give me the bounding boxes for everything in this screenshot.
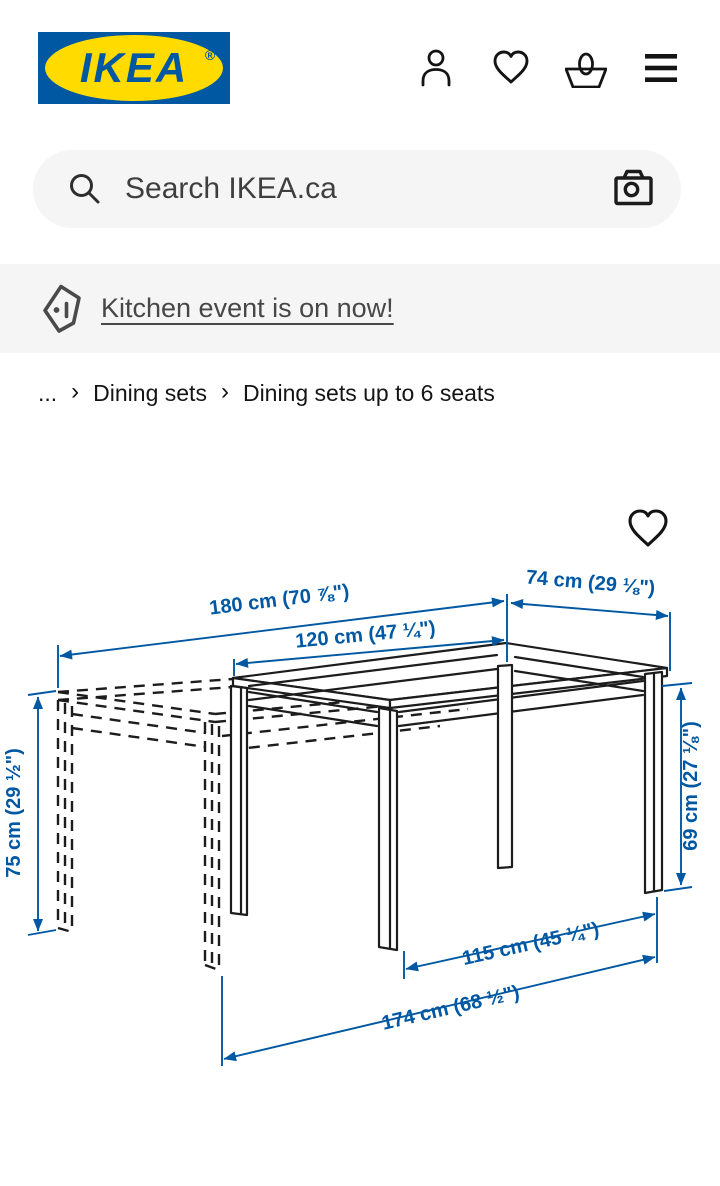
dimension-label-leg-span: 115 cm (45 ¼") <box>460 918 601 970</box>
breadcrumb: ... › Dining sets › Dining sets up to 6 … <box>38 379 495 407</box>
wishlist-button[interactable] <box>490 47 532 89</box>
heart-icon <box>626 508 670 550</box>
search-input[interactable] <box>125 172 613 206</box>
search-bar[interactable] <box>33 150 681 228</box>
camera-search-icon <box>613 169 653 206</box>
profile-icon <box>417 48 455 88</box>
dimension-label-width: 74 cm (29 ⅛") <box>525 566 656 599</box>
ikea-logo-text: IKEA <box>80 44 188 91</box>
camera-search-button[interactable] <box>613 169 653 209</box>
promo-banner: Kitchen event is on now! <box>0 264 720 353</box>
registered-mark: ® <box>205 47 216 63</box>
page: IKEA ® <box>0 0 720 1186</box>
ikea-logo-graphic: IKEA ® <box>38 32 230 104</box>
header-icons <box>415 47 682 89</box>
extended-table-dashed-outline <box>58 679 495 970</box>
basket-icon <box>565 48 607 88</box>
dimension-label-length: 120 cm (47 ¼") <box>294 617 436 652</box>
price-tag-icon <box>42 284 84 334</box>
ikea-logo[interactable]: IKEA ® <box>38 32 230 104</box>
search-icon <box>69 173 101 205</box>
product-dimension-drawing: 180 cm (70 ⅞") 74 cm (29 ⅛") 120 cm (47 … <box>0 430 720 1090</box>
dimension-annotations: 180 cm (70 ⅞") 74 cm (29 ⅛") 120 cm (47 … <box>3 566 702 1066</box>
table-outline <box>231 643 667 950</box>
favorite-button[interactable] <box>624 506 672 554</box>
cart-button[interactable] <box>565 47 607 89</box>
hamburger-icon <box>644 53 678 83</box>
menu-button[interactable] <box>640 47 682 89</box>
profile-button[interactable] <box>415 47 457 89</box>
dimension-label-extended-length: 180 cm (70 ⅞") <box>208 581 350 620</box>
dimension-label-underframe-height: 69 cm (27 ⅛") <box>680 721 702 851</box>
dimension-label-height: 75 cm (29 ½") <box>3 748 25 878</box>
promo-link[interactable]: Kitchen event is on now! <box>101 293 394 324</box>
breadcrumb-item-dining-sets[interactable]: Dining sets <box>93 380 207 407</box>
breadcrumb-separator: › <box>71 378 79 406</box>
dimension-label-extended-leg-span: 174 cm (68 ½") <box>380 982 522 1035</box>
heart-icon <box>492 50 530 86</box>
breadcrumb-ellipsis[interactable]: ... <box>38 380 57 407</box>
breadcrumb-item-current: Dining sets up to 6 seats <box>243 380 495 407</box>
breadcrumb-separator: › <box>221 378 229 406</box>
